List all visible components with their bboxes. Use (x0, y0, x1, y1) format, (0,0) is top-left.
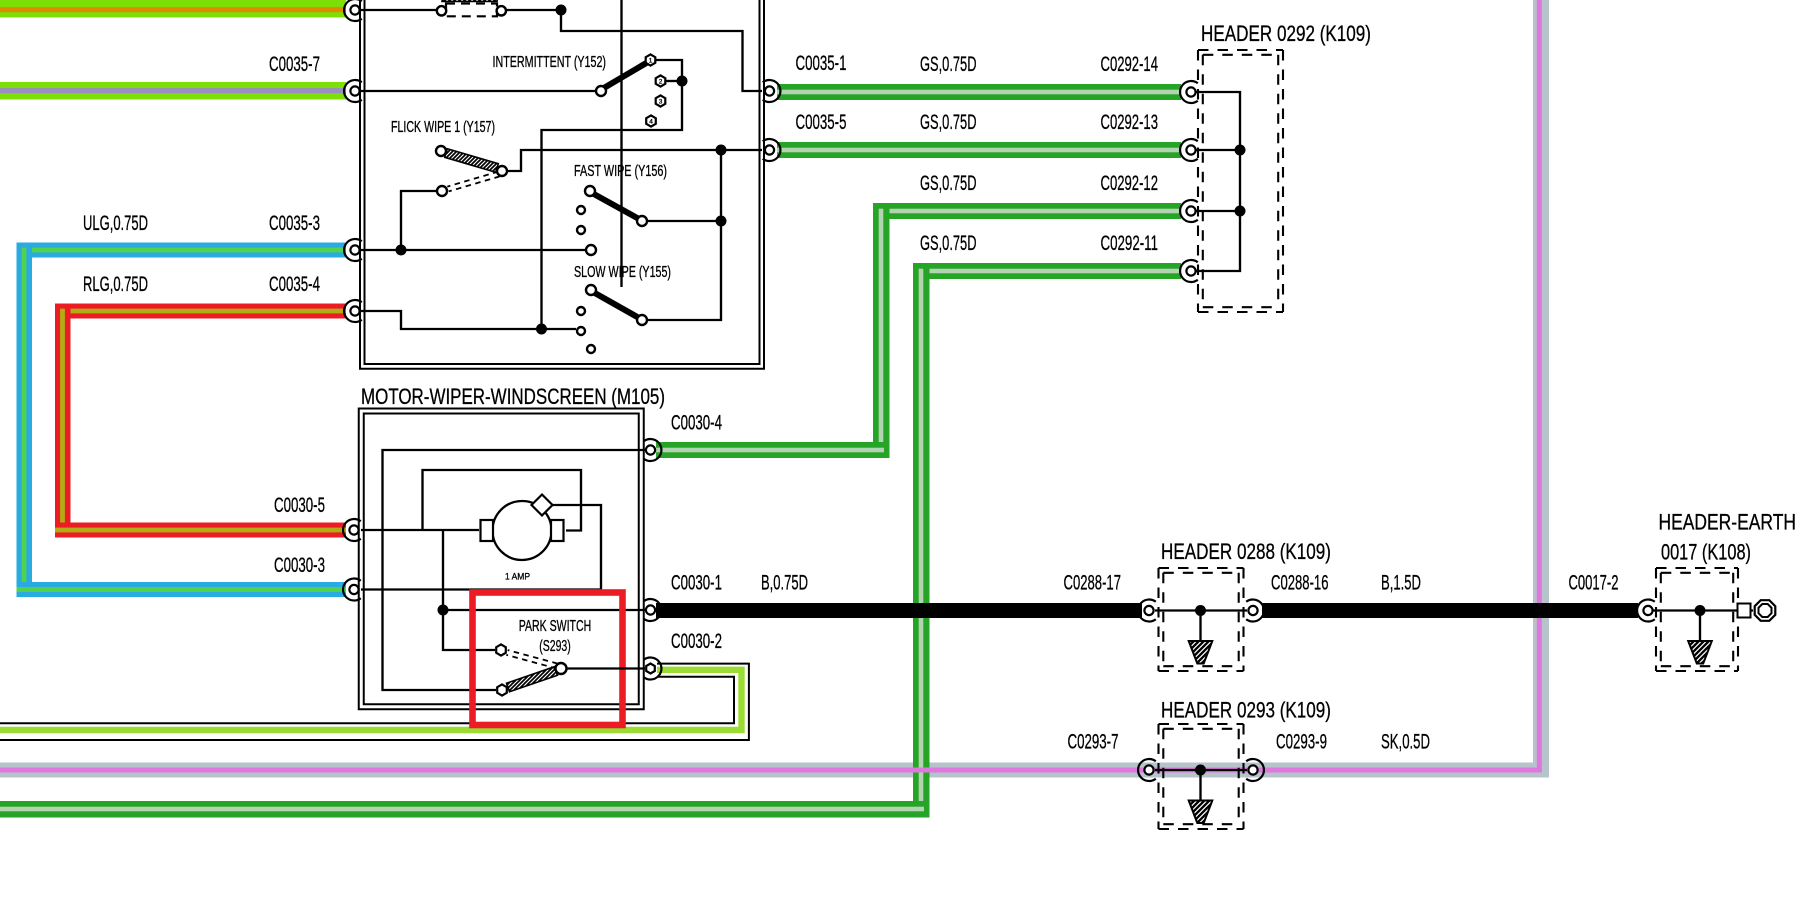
svg-text:GS,0.75D: GS,0.75D (920, 231, 977, 255)
svg-text:FLICK WIPE 1 (Y157): FLICK WIPE 1 (Y157) (391, 119, 495, 136)
svg-text:C0292-12: C0292-12 (1101, 171, 1159, 195)
svg-text:C0288-16: C0288-16 (1271, 571, 1329, 595)
svg-text:RLG,0.75D: RLG,0.75D (83, 272, 148, 296)
svg-text:C0030-2: C0030-2 (671, 629, 722, 653)
svg-text:C0288-17: C0288-17 (1064, 571, 1122, 595)
svg-text:INTERMITTENT (Y152): INTERMITTENT (Y152) (493, 54, 607, 71)
svg-text:C0030-3: C0030-3 (274, 553, 325, 577)
svg-text:HEADER-EARTH: HEADER-EARTH (1659, 510, 1797, 535)
svg-text:GS,0.75D: GS,0.75D (920, 110, 977, 134)
svg-text:B,1.5D: B,1.5D (1381, 571, 1421, 595)
svg-text:FAST WIPE (Y156): FAST WIPE (Y156) (574, 163, 667, 180)
svg-text:SK,0.5D: SK,0.5D (1381, 730, 1430, 754)
svg-text:4: 4 (649, 119, 653, 126)
svg-text:MOTOR-WIPER-WINDSCREEN (M105): MOTOR-WIPER-WINDSCREEN (M105) (361, 384, 665, 409)
svg-text:HEADER 0292 (K109): HEADER 0292 (K109) (1201, 21, 1371, 46)
svg-text:C0292-13: C0292-13 (1101, 110, 1159, 134)
svg-text:GS,0.75D: GS,0.75D (920, 171, 977, 195)
svg-text:C0293-9: C0293-9 (1276, 730, 1327, 754)
svg-text:C0035-5: C0035-5 (796, 110, 847, 134)
svg-text:(S293): (S293) (539, 638, 571, 655)
svg-text:SLOW WIPE (Y155): SLOW WIPE (Y155) (574, 264, 671, 281)
svg-text:C0292-11: C0292-11 (1101, 231, 1159, 255)
svg-text:3: 3 (659, 99, 663, 106)
svg-text:C0293-7: C0293-7 (1068, 730, 1119, 754)
svg-text:0017 (K108): 0017 (K108) (1661, 540, 1751, 565)
svg-text:C0030-4: C0030-4 (671, 411, 722, 435)
svg-text:1: 1 (649, 58, 653, 65)
svg-text:C0030-5: C0030-5 (274, 493, 325, 517)
svg-text:ULG,0.75D: ULG,0.75D (83, 211, 148, 235)
svg-text:C0035-7: C0035-7 (269, 52, 320, 76)
svg-text:C0035-1: C0035-1 (796, 51, 847, 75)
svg-text:1 AMP: 1 AMP (505, 572, 530, 582)
svg-text:PARK SWITCH: PARK SWITCH (519, 618, 592, 635)
svg-text:B,0.75D: B,0.75D (761, 571, 808, 595)
svg-text:C0292-14: C0292-14 (1101, 52, 1159, 76)
svg-text:HEADER 0288 (K109): HEADER 0288 (K109) (1161, 539, 1331, 564)
svg-text:2: 2 (659, 79, 663, 86)
svg-text:C0030-1: C0030-1 (671, 571, 722, 595)
svg-text:C0035-4: C0035-4 (269, 272, 320, 296)
svg-text:GS,0.75D: GS,0.75D (920, 52, 977, 76)
svg-text:C0035-3: C0035-3 (269, 211, 320, 235)
svg-text:HEADER 0293 (K109): HEADER 0293 (K109) (1161, 698, 1331, 723)
svg-text:C0017-2: C0017-2 (1569, 571, 1619, 595)
